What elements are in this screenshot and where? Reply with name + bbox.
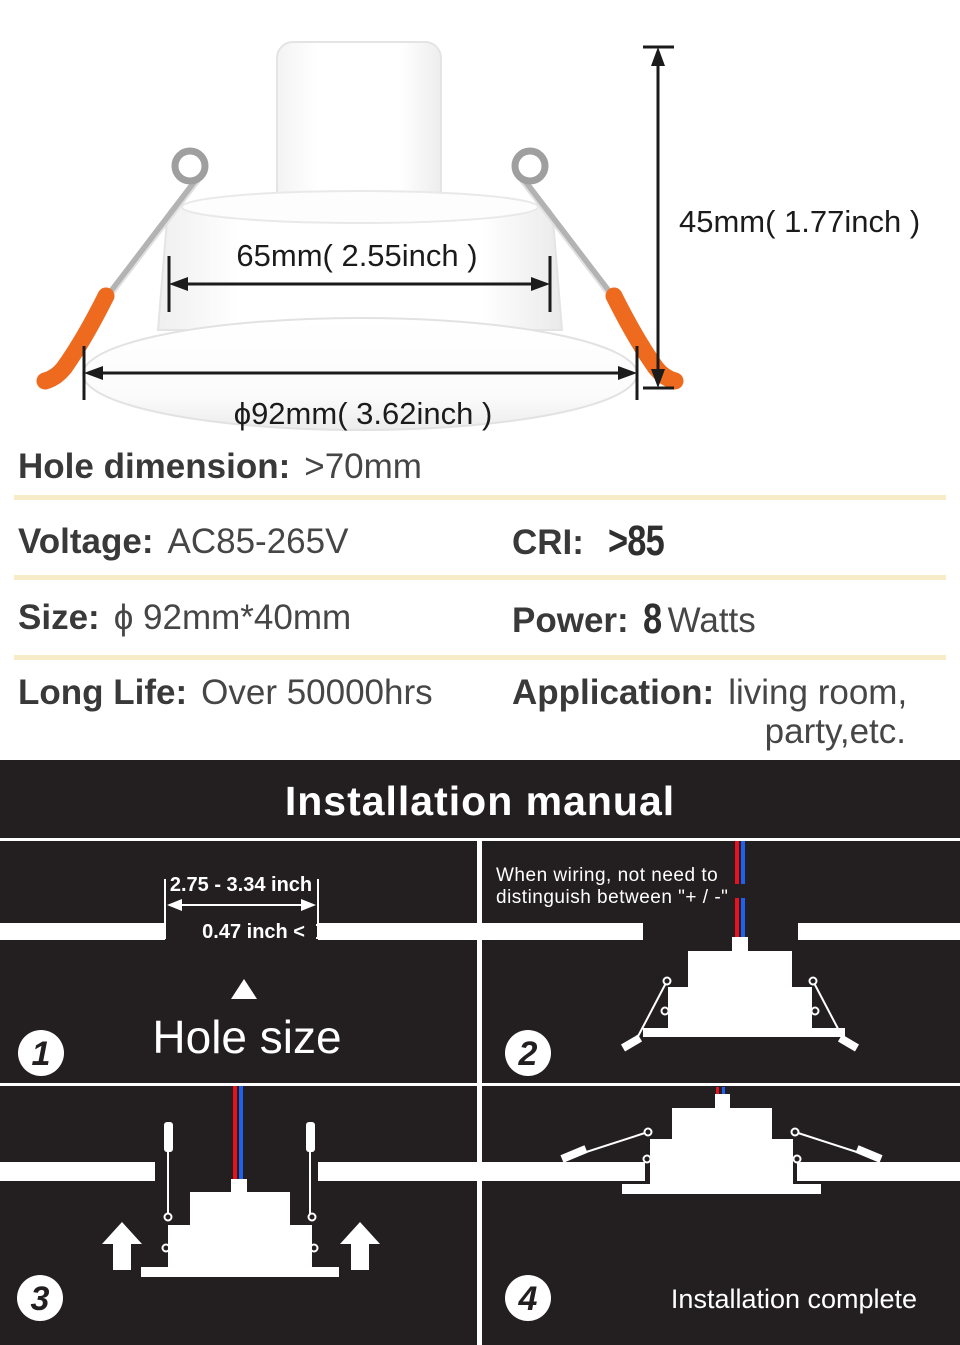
hole-dimension-label: Hole dimension:: [18, 447, 290, 486]
wire-blue: [239, 1086, 243, 1179]
wire-red: [735, 841, 739, 938]
ceiling-band: [0, 1162, 477, 1181]
spec-row-voltage: Voltage:AC85-265V: [18, 522, 348, 562]
up-triangle-icon: [231, 979, 257, 999]
long-life-value: Over 50000hrs: [201, 673, 433, 712]
spec-row-cri: CRI:>85: [512, 519, 678, 563]
wire-red: [233, 1086, 237, 1179]
wire-blue: [722, 1087, 725, 1094]
wire-blue: [741, 841, 745, 938]
spec-separator-1: [14, 495, 946, 500]
installation-manual-title: Installation manual: [0, 778, 960, 825]
manual-step-1-hole-size: 2.75 - 3.34 inch 0.47 inch < Hole size 1: [0, 841, 477, 1083]
spec-separator-2: [14, 575, 946, 580]
dimension-height: [643, 47, 674, 388]
dim-flange-width-label: ϕ92mm( 3.62inch ): [234, 396, 493, 431]
ceiling-band: [482, 923, 960, 940]
step-3-badge: 3: [17, 1275, 63, 1321]
power-label: Power:: [512, 601, 629, 640]
application-value-line1: living room,: [728, 673, 907, 712]
hole-dimension-value: >70mm: [304, 447, 422, 486]
cri-value: >85: [608, 520, 664, 563]
power-value-number: 8: [643, 598, 661, 641]
downlight-fixture: [643, 937, 845, 1037]
step-2-number: 2: [518, 1035, 538, 1073]
manual-step-3-insert: 3: [0, 1086, 477, 1345]
installation-manual-section: Installation manual 2.75 - 3.34 inch 0.4…: [0, 760, 960, 1345]
spec-separator-3: [14, 655, 946, 660]
up-arrow-right: [340, 1222, 380, 1270]
voltage-value: AC85-265V: [167, 522, 348, 561]
size-label: Size:: [18, 598, 100, 637]
application-label: Application:: [512, 673, 714, 712]
spec-row-size: Size:ϕ 92mm*40mm: [18, 598, 351, 638]
spec-row-hole-dimension: Hole dimension:>70mm: [18, 447, 422, 487]
fixture-body-top: [182, 191, 538, 223]
spec-row-long-life: Long Life:Over 50000hrs: [18, 673, 433, 713]
application-value-line2: party,etc.: [765, 712, 906, 752]
spec-row-application: Application:living room,: [512, 673, 907, 713]
spec-row-power: Power:8Watts: [512, 597, 756, 641]
product-dimension-diagram: 65mm( 2.55inch ) ϕ92mm( 3.62inch ) 45mm(…: [0, 0, 960, 440]
step-1-badge: 1: [18, 1030, 64, 1076]
power-value-unit: Watts: [668, 601, 756, 640]
manual-step-4-complete: Installation complete 4: [482, 1086, 960, 1345]
complete-caption: Installation complete: [671, 1284, 917, 1314]
downlight-product-infographic: 65mm( 2.55inch ) ϕ92mm( 3.62inch ) 45mm(…: [0, 0, 960, 1345]
voltage-label: Voltage:: [18, 522, 153, 561]
dim-height-label: 45mm( 1.77inch ): [679, 204, 920, 239]
step-2-badge: 2: [505, 1030, 551, 1076]
step-1-number: 1: [32, 1035, 51, 1073]
step-4-number: 4: [518, 1280, 538, 1318]
step-3-number: 3: [31, 1280, 50, 1318]
cri-label: CRI:: [512, 523, 584, 562]
dim-body-width-label: 65mm( 2.55inch ): [236, 238, 477, 273]
ceiling-thickness-label: 0.47 inch <: [202, 921, 305, 943]
size-value: ϕ 92mm*40mm: [114, 598, 351, 637]
wiring-note-line1: When wiring, not need to: [496, 865, 718, 886]
hole-width-label: 2.75 - 3.34 inch: [170, 874, 312, 896]
up-arrow-left: [102, 1222, 142, 1270]
wire-red: [716, 1087, 719, 1094]
hole-size-caption: Hole size: [152, 1011, 341, 1063]
wiring-note-line2: distinguish between "+ / -": [496, 887, 728, 908]
step-4-badge: 4: [505, 1275, 551, 1321]
downlight-fixture: [622, 1094, 821, 1194]
long-life-label: Long Life:: [18, 673, 187, 712]
manual-step-2-wiring: When wiring, not need to distinguish bet…: [482, 841, 960, 1083]
